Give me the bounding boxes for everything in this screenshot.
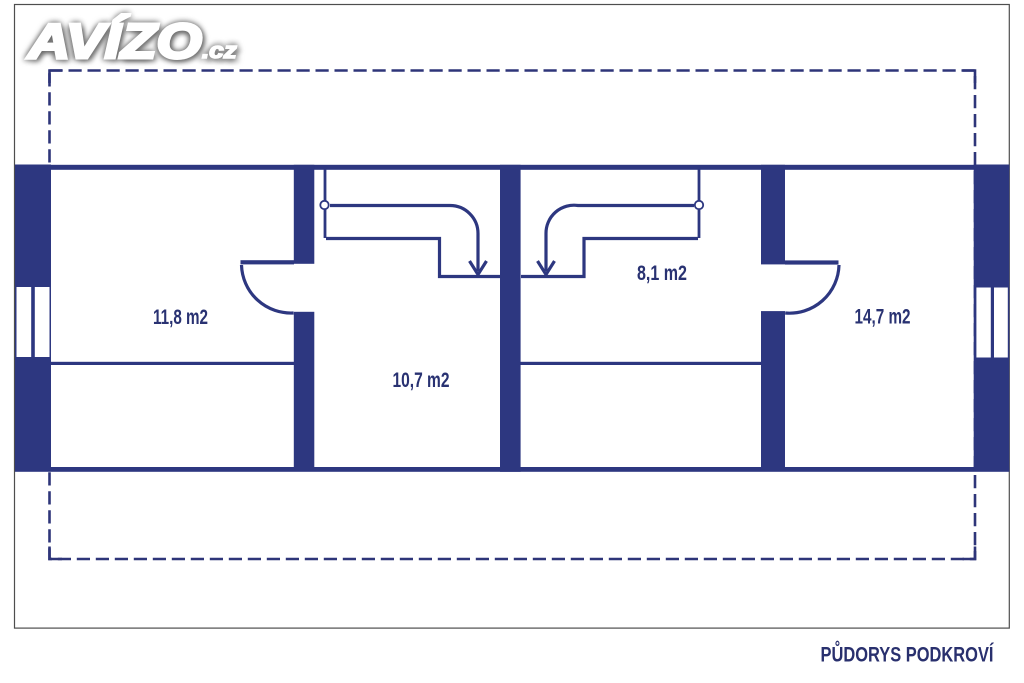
svg-text:10,7 m2: 10,7 m2 xyxy=(393,369,450,392)
svg-text:8,1 m2: 8,1 m2 xyxy=(637,262,687,285)
svg-text:11,8 m2: 11,8 m2 xyxy=(153,306,208,329)
svg-text:14,7 m2: 14,7 m2 xyxy=(855,306,911,329)
svg-text:PŮDORYS PODKROVÍ: PŮDORYS PODKROVÍ xyxy=(821,639,995,667)
